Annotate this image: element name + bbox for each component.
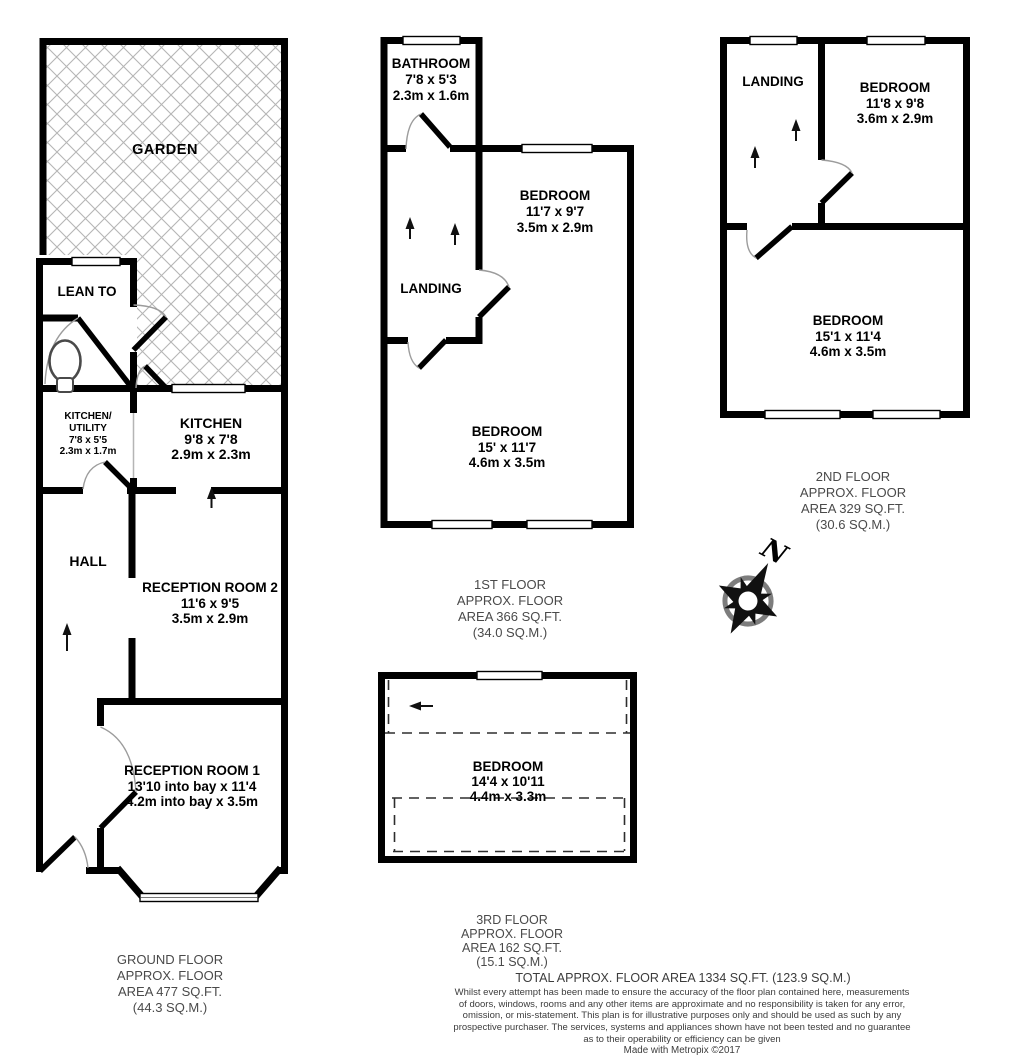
first-floor-door-arcs	[406, 114, 509, 368]
first-floor-bedroom-rear-label: BEDROOM 15' x 11'7 4.6m x 3.5m	[469, 424, 546, 471]
first-floor-area-label: 1ST FLOOR APPROX. FLOOR AREA 366 SQ.FT. …	[457, 577, 563, 641]
first-floor-door-leaves	[419, 114, 509, 368]
ground-floor-area-label: GROUND FLOOR APPROX. FLOOR AREA 477 SQ.F…	[117, 952, 223, 1016]
kitchen-utility-label: KITCHEN/ UTILITY 7'8 x 5'5 2.3m x 1.7m	[60, 411, 117, 458]
second-floor-stairs-arrows	[751, 119, 801, 168]
second-floor-door-leaves	[756, 173, 852, 258]
disclaimer-text: Whilst every attempt has been made to en…	[453, 987, 910, 1046]
reception-room-2-label: RECEPTION ROOM 2 11'6 x 9'5 3.5m x 2.9m	[142, 580, 278, 627]
second-floor-area-label: 2ND FLOOR APPROX. FLOOR AREA 329 SQ.FT. …	[800, 469, 906, 533]
compass-north-label: N	[755, 532, 793, 572]
third-floor-area-label: 3RD FLOOR APPROX. FLOOR AREA 162 SQ.FT. …	[461, 913, 563, 969]
garden-label: GARDEN	[132, 142, 198, 158]
bathroom-label: BATHROOM 7'8 x 5'3 2.3m x 1.6m	[392, 56, 471, 104]
total-floor-area: TOTAL APPROX. FLOOR AREA 1334 SQ.FT. (12…	[515, 971, 850, 985]
second-floor-landing-label: LANDING	[742, 74, 804, 90]
hall-stairs-arrow	[63, 623, 72, 651]
first-floor-stairs-arrows	[406, 217, 460, 245]
second-floor-bedroom-front-label: BEDROOM 11'8 x 9'8 3.6m x 2.9m	[857, 80, 934, 127]
third-floor-bedroom-label: BEDROOM 14'4 x 10'11 4.4m x 3.3m	[470, 759, 547, 804]
lean-to-label: LEAN TO	[57, 284, 116, 300]
first-floor-landing-label: LANDING	[400, 281, 462, 297]
third-floor-stairs-arrow	[409, 702, 433, 711]
floorplan-canvas: N GARDEN LEAN TO KITCHEN/ UTILITY 7'8 x …	[0, 0, 1024, 1061]
metropix-credit: Made with Metropix ©2017	[624, 1045, 741, 1056]
second-floor-door-arcs	[747, 160, 852, 258]
compass-rose: N	[699, 522, 812, 651]
kitchen-label: KITCHEN 9'8 x 7'8 2.9m x 2.3m	[171, 416, 250, 463]
second-floor-bedroom-rear-label: BEDROOM 15'1 x 11'4 4.6m x 3.5m	[810, 313, 887, 360]
reception-room-1-label: RECEPTION ROOM 1 13'10 into bay x 11'4 4…	[124, 763, 260, 810]
third-floor-window	[477, 672, 542, 680]
hall-label: HALL	[69, 554, 106, 570]
first-floor-bedroom-front-label: BEDROOM 11'7 x 9'7 3.5m x 2.9m	[517, 188, 594, 236]
